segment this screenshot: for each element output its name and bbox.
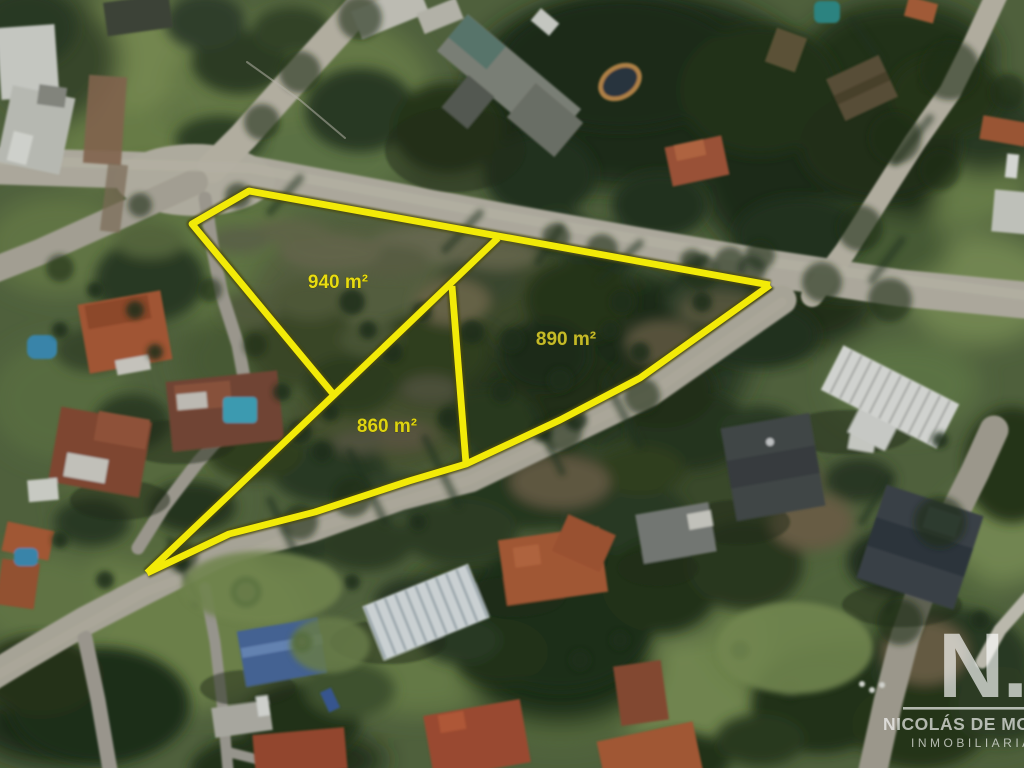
svg-text:860 m²: 860 m² xyxy=(357,416,417,437)
svg-text:940 m²: 940 m² xyxy=(308,272,368,293)
svg-text:INMOBILIARIA: INMOBILIARIA xyxy=(911,736,1024,750)
svg-text:NICOLÁS DE MON: NICOLÁS DE MON xyxy=(883,713,1024,734)
svg-text:890 m²: 890 m² xyxy=(536,329,596,350)
svg-text:N.: N. xyxy=(938,615,1024,717)
